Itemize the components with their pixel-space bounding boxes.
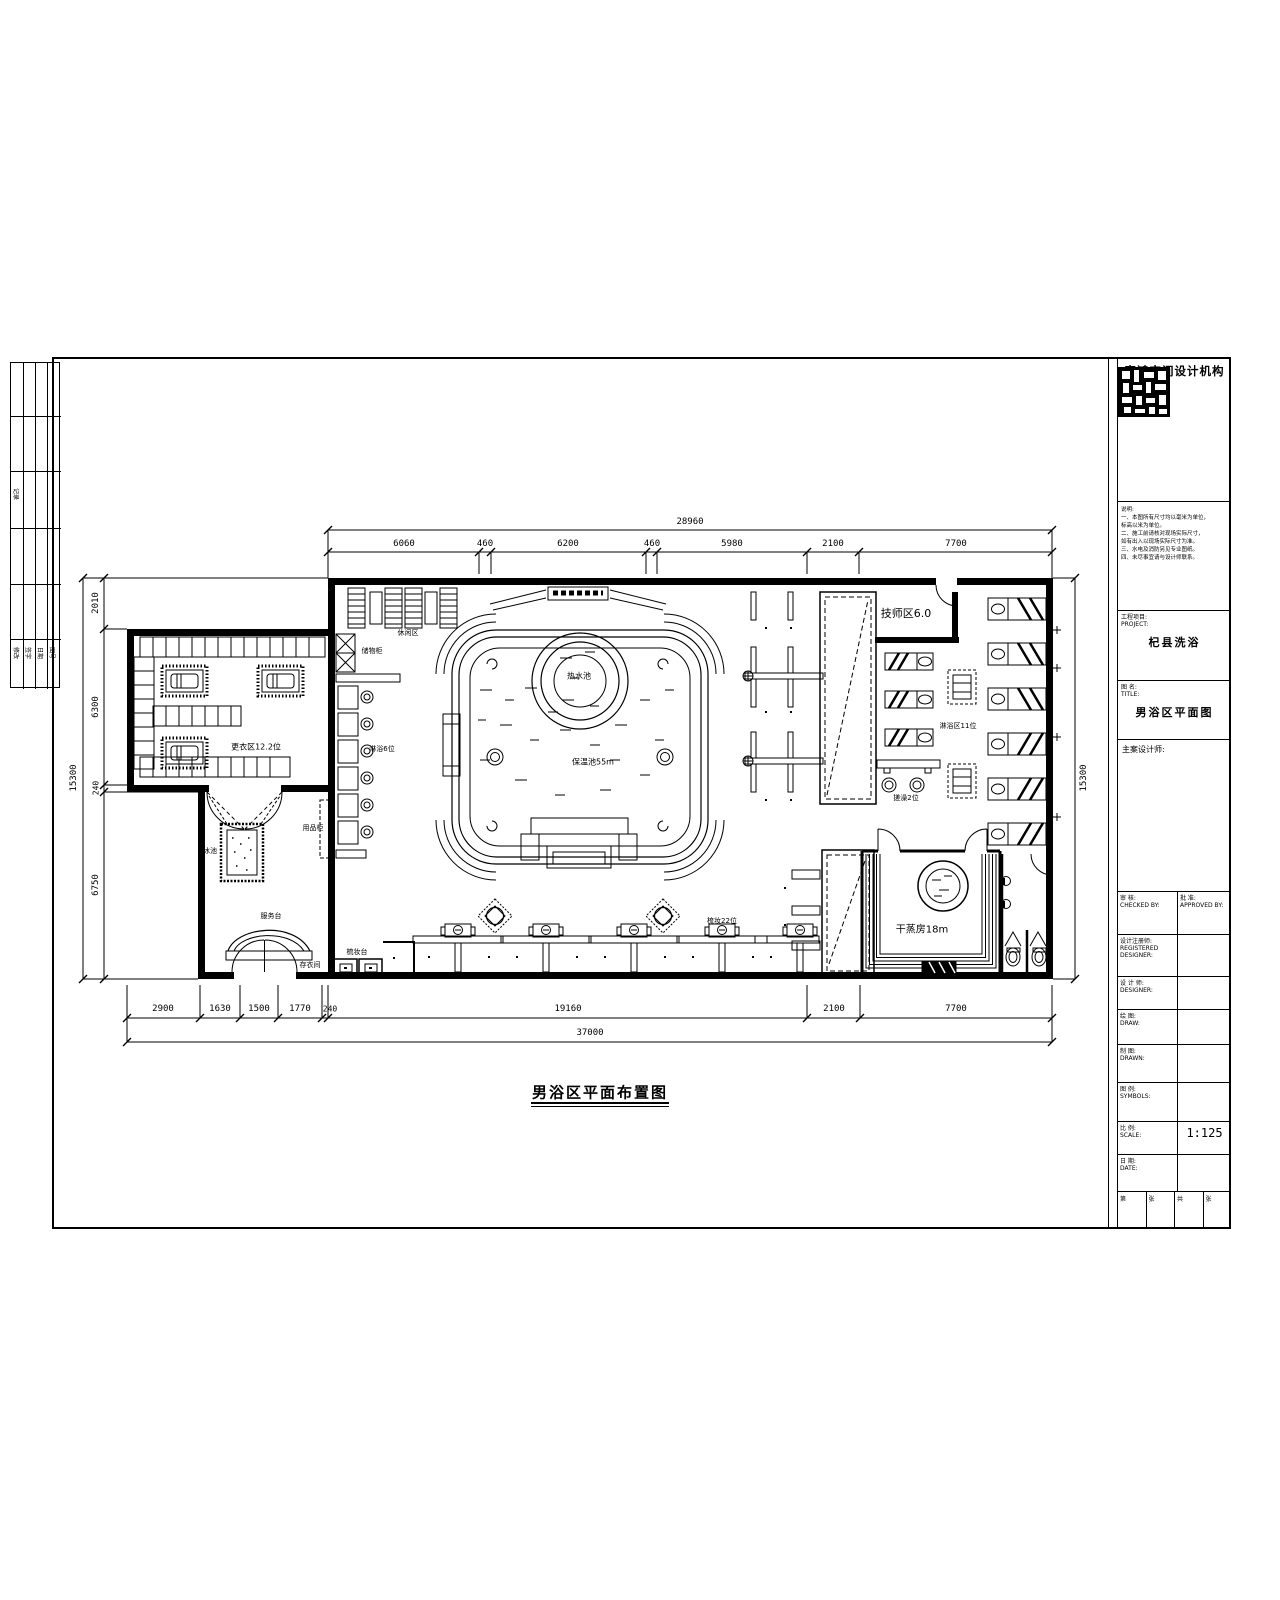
revision-strip: 记录 修改 签字 日期 图号 bbox=[10, 362, 60, 688]
ornamental-columns bbox=[478, 899, 680, 933]
tech-door-opening bbox=[936, 578, 957, 586]
designer-label-en: DESIGNER: bbox=[1120, 987, 1175, 994]
dim-bottom-1: 1630 bbox=[209, 1004, 231, 1014]
approved-label-en: APPROVED BY: bbox=[1180, 902, 1229, 909]
label-shower11: 淋浴区11位 bbox=[940, 721, 977, 731]
date-value bbox=[1178, 1155, 1231, 1191]
label-steam-room: 干蒸房18m bbox=[896, 921, 948, 936]
dim-bottom-5: 19160 bbox=[554, 1004, 581, 1014]
footer-cell-1: 张 bbox=[1147, 1192, 1176, 1229]
dim-top-6: 7700 bbox=[945, 539, 967, 549]
revision-col-label-0: 修改 bbox=[12, 647, 21, 659]
lounge-chairs bbox=[348, 588, 457, 628]
dim-bottom-6: 2100 bbox=[823, 1004, 845, 1014]
notes-line: 一、本图所有尺寸均以毫米为单位， bbox=[1121, 514, 1228, 522]
dim-right-total: 15300 bbox=[1079, 764, 1089, 791]
dim-bottom-2: 1500 bbox=[248, 1004, 270, 1014]
symbols-label-en: SYMBOLS: bbox=[1120, 1093, 1175, 1100]
label-supplies-cabinet: 用品柜 bbox=[303, 823, 324, 833]
label-scrub2: 搓澡2位 bbox=[893, 793, 918, 803]
label-technician-area: 技师区6.0 bbox=[881, 605, 932, 621]
drawing-title: 男浴区平面布置图 bbox=[532, 1082, 668, 1103]
scale-label: 比 例: bbox=[1120, 1125, 1175, 1132]
title-underline-thin bbox=[531, 1106, 669, 1107]
draw-label-en: DRAW: bbox=[1120, 1020, 1175, 1027]
dim-top-1: 460 bbox=[477, 539, 493, 549]
cad-sheet: 休闲区 储物柜 淋浴6位 更衣区12.2位 用品柜 冰池 服务台 存衣间 梳妆台… bbox=[0, 0, 1280, 1600]
label-vanity: 梳妆台 bbox=[347, 947, 368, 957]
entry-area bbox=[209, 796, 312, 972]
entry-canopy bbox=[490, 587, 666, 610]
symbols-value bbox=[1178, 1083, 1231, 1121]
dim-left-3: 6750 bbox=[91, 874, 101, 896]
notes-line: 二、施工前请核对现场实际尺寸， bbox=[1121, 530, 1228, 538]
label-service-desk: 服务台 bbox=[261, 911, 282, 921]
designer-value bbox=[1178, 977, 1231, 1009]
dim-top-2: 6200 bbox=[557, 539, 579, 549]
drawn-value bbox=[1178, 1045, 1231, 1082]
scale-value: 1:125 bbox=[1178, 1122, 1231, 1154]
draw-label: 绘 图: bbox=[1120, 1013, 1175, 1020]
title-block-outer-line bbox=[1108, 357, 1109, 1229]
dim-left-0: 2010 bbox=[91, 592, 101, 614]
toilet-room bbox=[1002, 854, 1053, 972]
drawing-name-label: 图 名: bbox=[1121, 684, 1228, 691]
label-changing-area: 更衣区12.2位 bbox=[231, 742, 281, 753]
approved-label: 批 准: bbox=[1180, 895, 1229, 902]
dim-top-0: 6060 bbox=[393, 539, 415, 549]
label-vanity22: 梳妆22位 bbox=[707, 916, 737, 926]
revision-col-label-3: 图号 bbox=[48, 647, 57, 659]
label-ice-pool: 冰池 bbox=[203, 846, 217, 856]
drawn-label: 制 图: bbox=[1120, 1048, 1175, 1055]
dim-bottom-0: 2900 bbox=[152, 1004, 174, 1014]
wash-stations bbox=[413, 924, 819, 972]
revision-col-label-1: 签字 bbox=[24, 647, 33, 659]
dim-left-2: 240 bbox=[92, 781, 101, 795]
title-block: 富鸿空间设计机构 说明: 一、本图所有尺寸均以毫米为单位， 标高以米为单位。 二… bbox=[1117, 357, 1231, 1229]
label-locker-cabinet: 储物柜 bbox=[362, 646, 383, 656]
dim-bottom-4: 240 bbox=[323, 1005, 337, 1014]
registered-designer-value bbox=[1178, 935, 1231, 976]
checked-label-en: CHECKED BY: bbox=[1120, 902, 1175, 909]
steam-room bbox=[862, 829, 1000, 973]
title-underline-thick bbox=[531, 1102, 669, 1104]
dim-top-total: 28960 bbox=[676, 517, 703, 527]
label-hot-pool: 热水池 bbox=[567, 671, 591, 682]
dim-top-3: 460 bbox=[644, 539, 660, 549]
dim-top-4: 5980 bbox=[721, 539, 743, 549]
warm-pool bbox=[436, 614, 724, 880]
dim-bottom-3: 1770 bbox=[289, 1004, 311, 1014]
revision-col-label-2: 日期 bbox=[36, 647, 45, 659]
draw-value bbox=[1178, 1010, 1231, 1044]
footer-cell-2: 共 bbox=[1175, 1192, 1204, 1229]
dim-bottom-total: 37000 bbox=[576, 1028, 603, 1038]
designer-label: 设 计 师: bbox=[1120, 980, 1175, 987]
drawn-label-en: DRAWN: bbox=[1120, 1055, 1175, 1062]
symbols-label: 图 例: bbox=[1120, 1086, 1175, 1093]
dim-top-5: 2100 bbox=[822, 539, 844, 549]
notes-heading: 说明: bbox=[1121, 506, 1228, 514]
dim-left-total: 15300 bbox=[69, 764, 79, 791]
checked-label: 审 核: bbox=[1120, 895, 1175, 902]
label-shower6: 淋浴6位 bbox=[369, 744, 394, 754]
footer-cell-3: 张 bbox=[1204, 1192, 1232, 1229]
notes-line: 标高以米为单位。 bbox=[1121, 522, 1228, 530]
drawing-name-label-en: TITLE: bbox=[1121, 691, 1228, 698]
shower-partitions bbox=[743, 592, 823, 800]
floor-plan-drawing bbox=[0, 0, 1280, 1600]
notes-line: 三、水电及消防另见专业图纸。 bbox=[1121, 546, 1228, 554]
notes-line: 四、未尽事宜请与设计师联系。 bbox=[1121, 554, 1228, 562]
registered-designer-label: 设计注册师: bbox=[1120, 938, 1175, 945]
company-stamp-logo bbox=[1118, 367, 1170, 417]
label-warm-pool: 保温池55m bbox=[572, 757, 614, 768]
scale-label-en: SCALE: bbox=[1120, 1132, 1175, 1139]
project-value: 杞县洗浴 bbox=[1121, 634, 1228, 650]
project-label: 工程项目: bbox=[1121, 614, 1228, 621]
changing-room-fixtures bbox=[134, 637, 325, 829]
label-cloakroom: 存衣间 bbox=[300, 960, 321, 970]
chief-designer-label: 主案设计师: bbox=[1122, 744, 1227, 755]
registered-designer-label-en: REGISTERED DESIGNER: bbox=[1120, 945, 1175, 959]
dim-bottom-7: 7700 bbox=[945, 1004, 967, 1014]
date-label-en: DATE: bbox=[1120, 1165, 1175, 1172]
date-label: 日 期: bbox=[1120, 1158, 1175, 1165]
footer-cell-0: 第 bbox=[1118, 1192, 1147, 1229]
label-leisure-area: 休闲区 bbox=[398, 628, 419, 638]
notes-line: 如有出入以现场实际尺寸为准。 bbox=[1121, 538, 1228, 546]
project-label-en: PROJECT: bbox=[1121, 621, 1228, 628]
drawing-name-value: 男浴区平面图 bbox=[1121, 704, 1228, 720]
dim-left-1: 6300 bbox=[91, 696, 101, 718]
revision-side-label: 记录 bbox=[12, 488, 21, 500]
